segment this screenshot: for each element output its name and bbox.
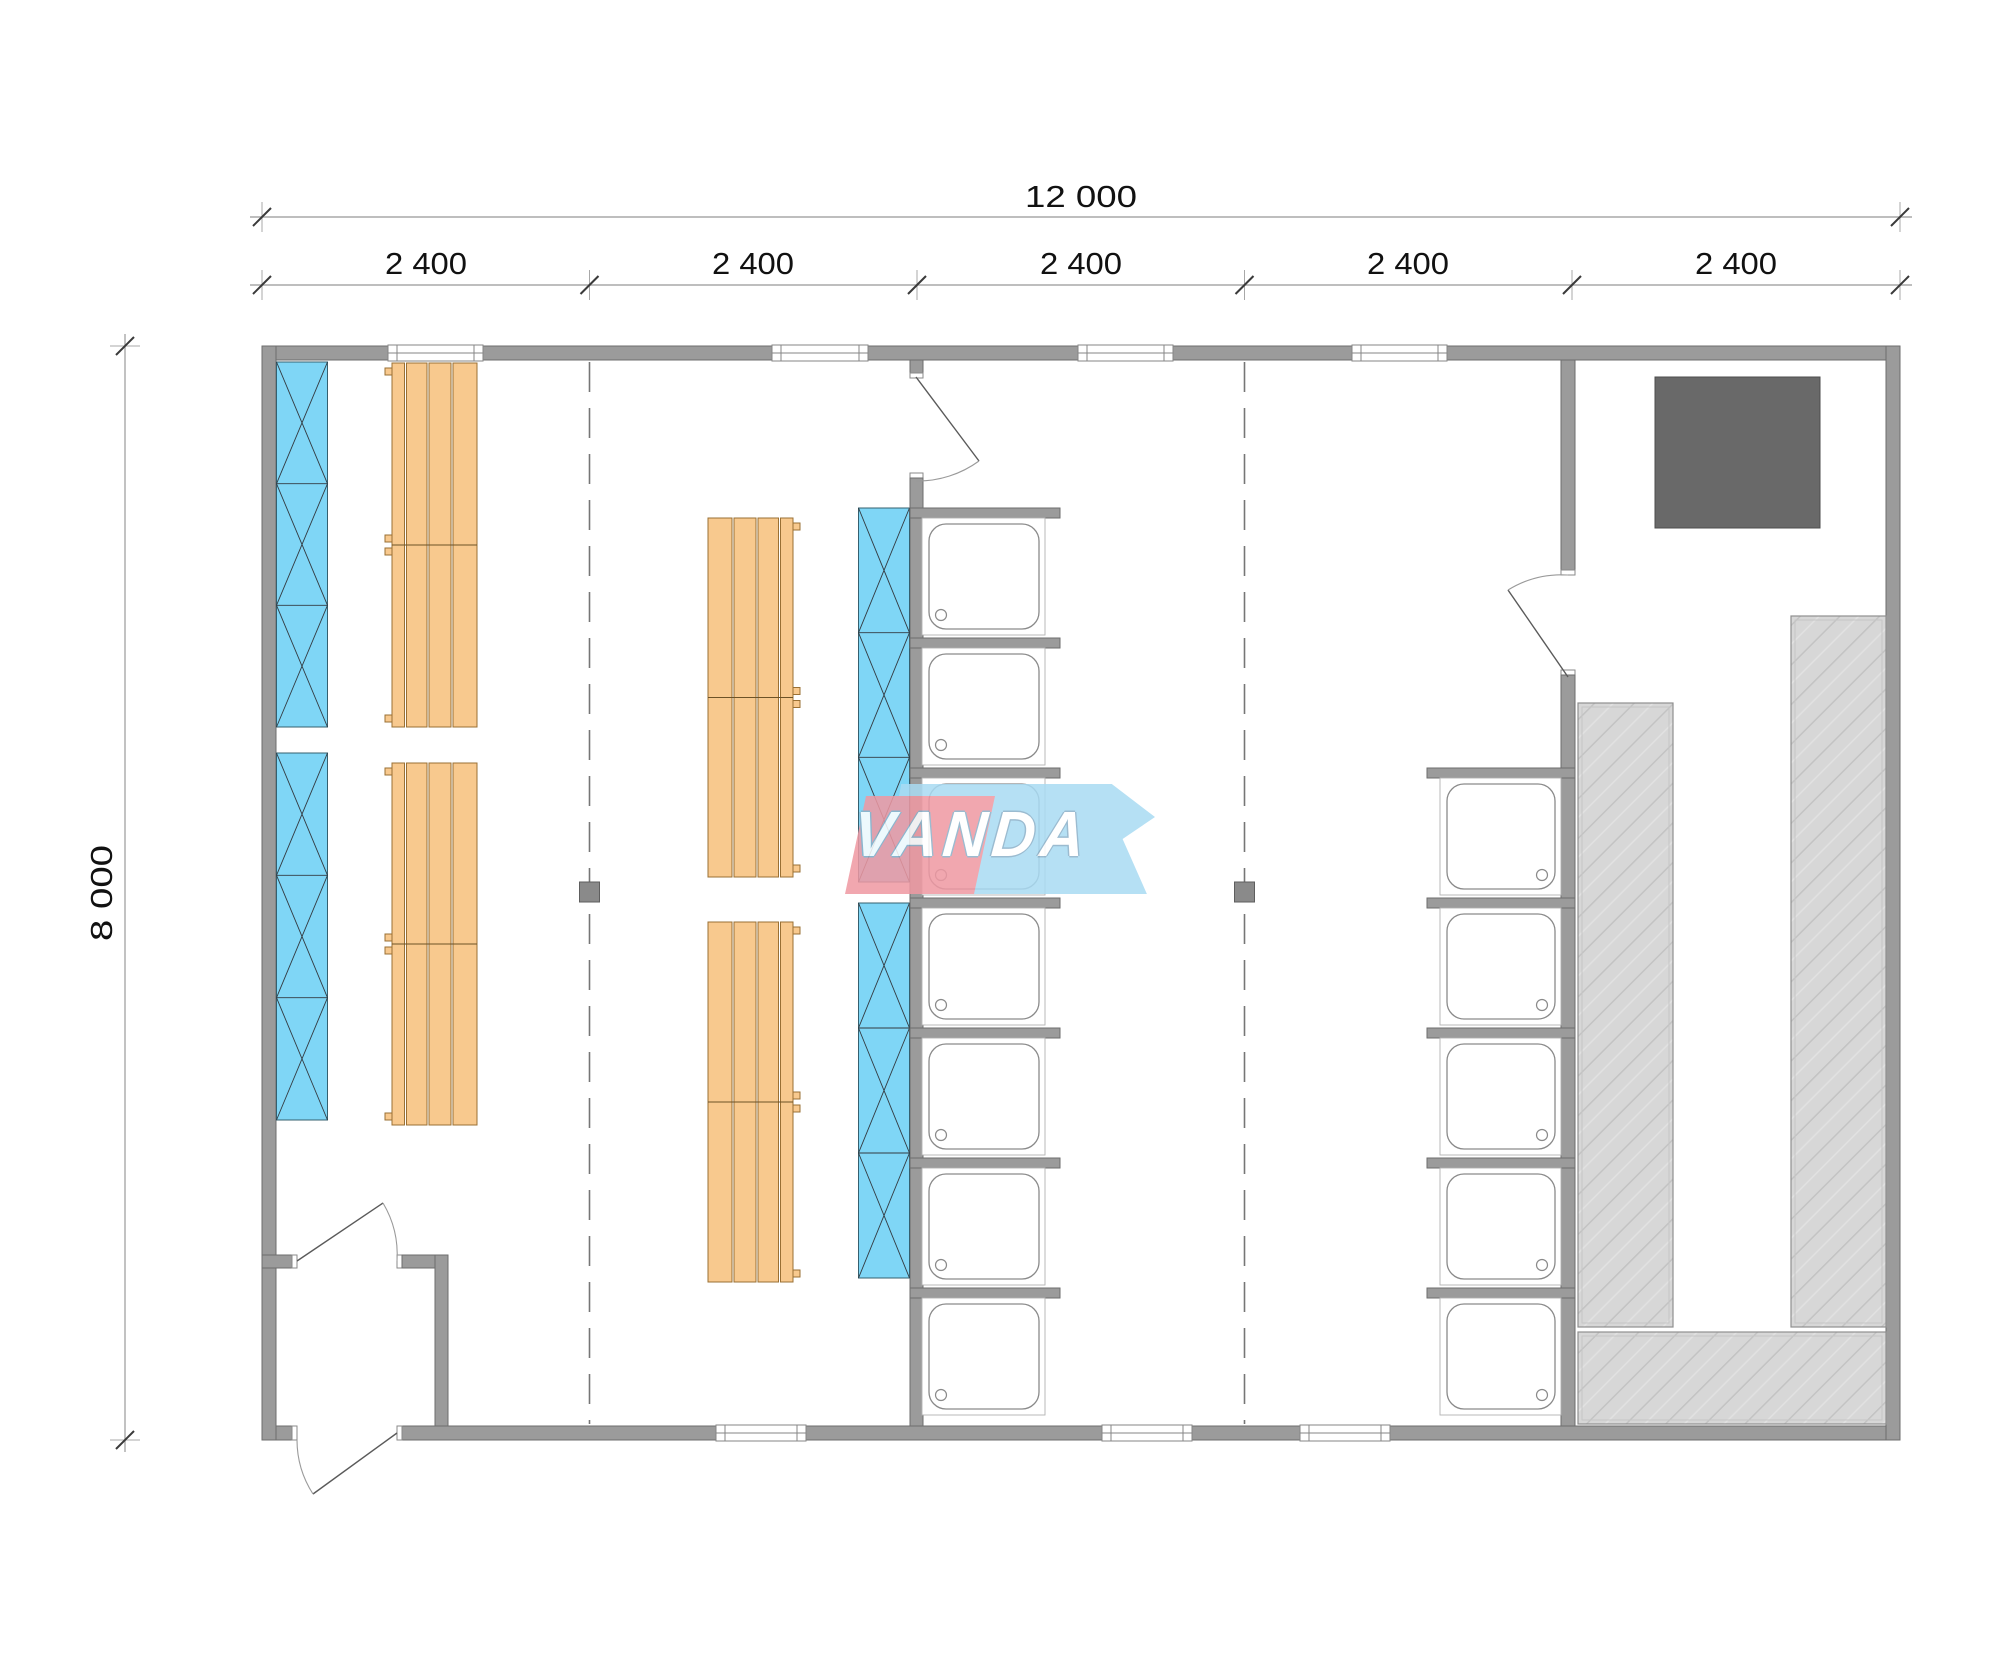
door-jamb-cap [292, 1426, 297, 1440]
shower-partition-stub [910, 1288, 1060, 1298]
bench-foot-tab [793, 523, 800, 530]
dimension-label-segment: 2 400 [1367, 246, 1449, 281]
bench-foot-tab [793, 1105, 800, 1112]
dimension-label-overall-width: 12 000 [1025, 179, 1137, 214]
shower-partition-stub [910, 768, 1060, 778]
bench-foot-tab [385, 768, 392, 775]
shower-drain [936, 740, 947, 751]
dimension-label-segment: 2 400 [1695, 246, 1777, 281]
wall-bottom [262, 1426, 1900, 1440]
shower-drain [936, 610, 947, 621]
sauna-deck-bench-right [1791, 616, 1886, 1327]
vestibule-wall-top-left [262, 1255, 292, 1268]
sauna-deck-bench-bottom [1578, 1332, 1886, 1424]
sauna-stove [1655, 377, 1820, 528]
dimension-label-segment: 2 400 [385, 246, 467, 281]
shower-partition-stub [910, 1158, 1060, 1168]
bench-foot-tab [793, 1092, 800, 1099]
glass-panels [277, 362, 910, 1278]
door-leaf-sauna [1508, 590, 1568, 677]
bench-foot-tab [385, 947, 392, 954]
shower-drain [1537, 1130, 1548, 1141]
bench-foot-tab [385, 934, 392, 941]
shower-trays [910, 508, 1575, 1415]
wall-shower-left [910, 478, 923, 1426]
shower-drain [936, 1000, 947, 1011]
door-leaf-shower-room [916, 377, 979, 461]
shower-drain [936, 1390, 947, 1401]
shower-drain [936, 870, 947, 881]
sauna-room [1578, 377, 1886, 1424]
bench-foot-tab [385, 548, 392, 555]
shower-partition-stub [1427, 768, 1575, 778]
door-swing-arc [1508, 575, 1568, 590]
bench-foot-tab [385, 715, 392, 722]
shower-partition-stub [910, 1028, 1060, 1038]
wall-sauna-upper [1561, 360, 1575, 570]
door-swing-arc [916, 461, 979, 481]
door-swing-arc [297, 1440, 313, 1494]
door-jamb-cap [397, 1426, 402, 1440]
dimension-label-segment: 2 400 [712, 246, 794, 281]
bench-foot-tab [385, 368, 392, 375]
shower-drain [1537, 1260, 1548, 1271]
wall-shower-left-stub [910, 360, 923, 373]
shower-partition-stub [1427, 1028, 1575, 1038]
shower-partition-stub [910, 898, 1060, 908]
bench-foot-tab [385, 535, 392, 542]
floor-plan-drawing: 12 000 2 400 2 400 2 400 2 400 2 400 8 0… [0, 0, 2000, 1669]
dimension-label-segment: 2 400 [1040, 246, 1122, 281]
shower-partition-stub [1427, 1158, 1575, 1168]
shower-drain [936, 1260, 947, 1271]
column-post [580, 882, 600, 902]
shower-drain [936, 1130, 947, 1141]
shower-partition-stub [910, 508, 1060, 518]
bench-foot-tab [793, 1270, 800, 1277]
door-leaf-vestibule-inner [297, 1203, 383, 1261]
door-jamb-cap [910, 473, 923, 478]
wall-left [262, 346, 276, 1440]
shower-drain [1537, 1390, 1548, 1401]
shower-partition-stub [910, 638, 1060, 648]
wall-right [1886, 346, 1900, 1440]
entrance-door-opening [297, 1425, 397, 1441]
wall-sauna-lower [1561, 675, 1575, 1426]
shower-partition-stub [1427, 1288, 1575, 1298]
door-swing-arc [383, 1203, 397, 1261]
bench-foot-tab [793, 701, 800, 708]
column-post [1235, 882, 1255, 902]
door-jamb-cap [292, 1255, 297, 1268]
floor-plan-canvas: 12 000 2 400 2 400 2 400 2 400 2 400 8 0… [0, 0, 2000, 1669]
wooden-benches [385, 363, 800, 1282]
dimension-label-overall-height: 8 000 [84, 845, 119, 941]
shower-drain [1537, 1000, 1548, 1011]
sauna-deck-bench-left [1578, 703, 1673, 1327]
shower-partition-stub [1427, 898, 1575, 908]
door-leaf-entrance [313, 1433, 397, 1494]
shower-drain [1537, 870, 1548, 881]
bench-foot-tab [793, 865, 800, 872]
bench-foot-tab [793, 927, 800, 934]
bench-foot-tab [793, 688, 800, 695]
bench-foot-tab [385, 1113, 392, 1120]
door-jamb-cap [397, 1255, 402, 1268]
vestibule-wall-right [435, 1255, 448, 1426]
